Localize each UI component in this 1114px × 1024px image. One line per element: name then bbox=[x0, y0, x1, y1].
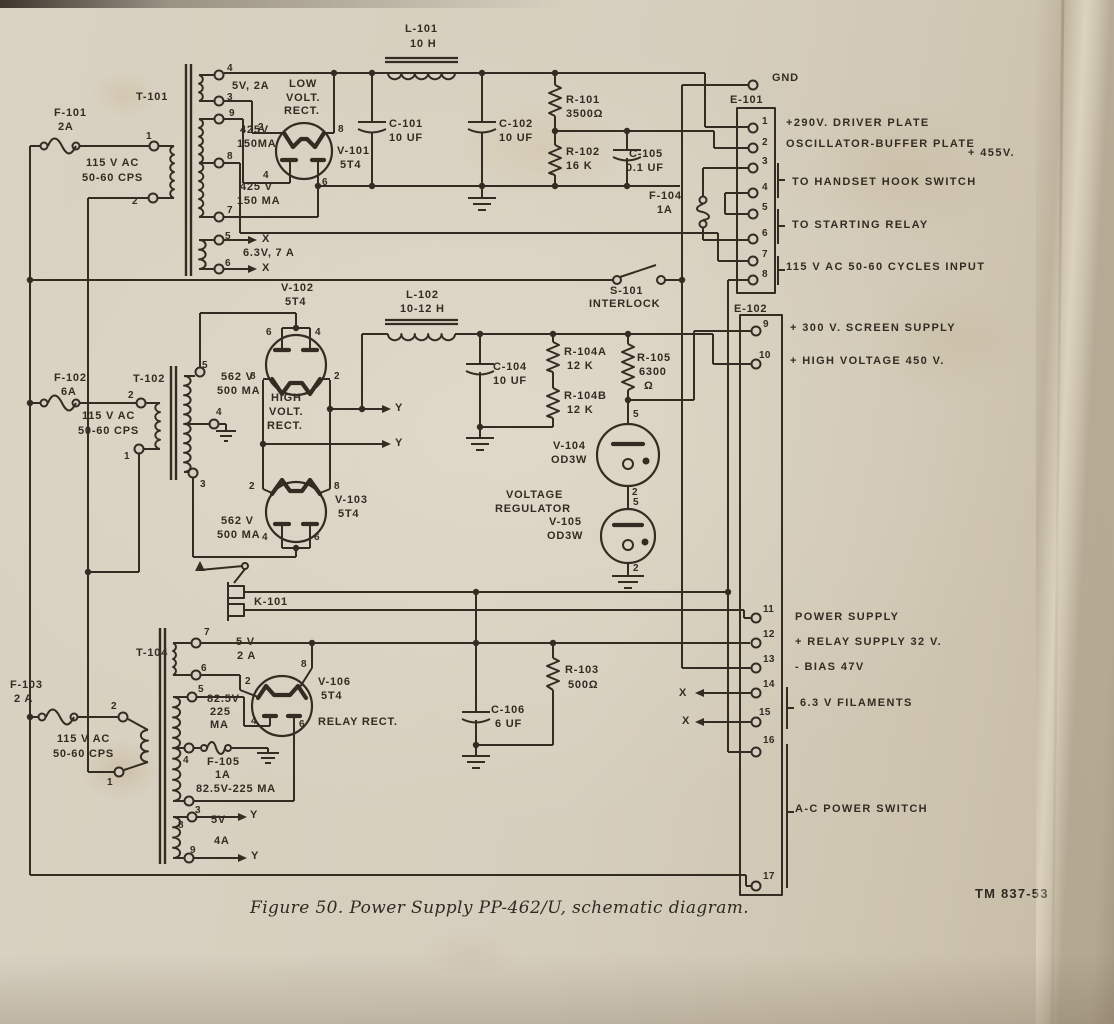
label-out-osc-buffer-v: + 455V. bbox=[968, 147, 1015, 160]
pin-t101-8: 8 bbox=[227, 151, 233, 163]
label-t104-tap: 82.5V-225 MA bbox=[196, 783, 276, 796]
label-r105-value: 6300 bbox=[639, 366, 667, 379]
label-out-handset-hook: TO HANDSET HOOK SWITCH bbox=[792, 176, 977, 189]
label-t104-5v4-a: 4A bbox=[214, 835, 230, 848]
pin-e101-8: 8 bbox=[762, 269, 768, 281]
figure-caption: Figure 50. Power Supply PP-462/U, schema… bbox=[250, 898, 749, 918]
pin-t102-3: 3 bbox=[200, 479, 206, 491]
r104b-resistor bbox=[547, 388, 559, 418]
label-c102: C-102 bbox=[499, 118, 533, 131]
label-v105: V-105 bbox=[549, 516, 582, 529]
pin-e101-2: 2 bbox=[762, 137, 768, 149]
f104-fuse bbox=[697, 197, 709, 228]
v102-tube bbox=[266, 335, 326, 395]
label-v102-role1: HIGH bbox=[271, 392, 302, 405]
label-t101-425v-2: 425 V bbox=[240, 181, 273, 194]
label-c101-value: 10 UF bbox=[389, 132, 423, 145]
label-v101: V-101 bbox=[337, 145, 370, 158]
label-r104a-value: 12 K bbox=[567, 360, 593, 373]
label-v102: V-102 bbox=[281, 282, 314, 295]
label-y-marker-1: Y bbox=[395, 402, 403, 415]
label-t101-63v-winding: 6.3V, 7 A bbox=[243, 247, 295, 260]
pin-e102-15: 15 bbox=[759, 707, 771, 719]
label-out-relay-supply: + RELAY SUPPLY 32 V. bbox=[795, 636, 942, 649]
x-arrow bbox=[248, 265, 257, 273]
label-f103: F-103 bbox=[10, 679, 43, 692]
label-v104-type: OD3W bbox=[551, 454, 587, 467]
pin-t101-6: 6 bbox=[225, 258, 231, 270]
label-c106-value: 6 UF bbox=[495, 718, 522, 731]
pin-e102-11: 11 bbox=[763, 604, 774, 616]
label-v102-role2: VOLT. bbox=[269, 406, 303, 419]
label-e101: E-101 bbox=[730, 94, 763, 107]
r104a-resistor bbox=[547, 342, 559, 372]
pin-t102-1: 1 bbox=[124, 451, 130, 463]
y-arrow bbox=[382, 440, 391, 448]
label-t101-425v-1: 425V bbox=[240, 124, 269, 137]
r102-resistor bbox=[549, 145, 561, 175]
label-v102-role3: RECT. bbox=[267, 420, 303, 433]
label-r102: R-102 bbox=[566, 146, 600, 159]
label-x-marker-3: X bbox=[679, 687, 687, 700]
pin-t104-5: 5 bbox=[198, 684, 204, 696]
label-c105: C-105 bbox=[629, 148, 663, 161]
label-c106: C-106 bbox=[491, 704, 525, 717]
page-fold-shadow bbox=[1036, 0, 1114, 1024]
c102-capacitor bbox=[468, 122, 496, 133]
pin-v102-4: 4 bbox=[315, 327, 321, 339]
pin-t104-7: 7 bbox=[204, 627, 210, 639]
r101-resistor bbox=[549, 85, 561, 116]
label-s101-caption: INTERLOCK bbox=[589, 298, 660, 311]
label-t101-5v-winding: 5V, 2A bbox=[232, 80, 269, 93]
label-v102-type: 5T4 bbox=[285, 296, 306, 309]
t101-transformer bbox=[170, 64, 214, 276]
pin-v103-6: 6 bbox=[314, 532, 320, 544]
label-out-osc-buffer: OSCILLATOR-BUFFER PLATE bbox=[786, 138, 975, 151]
pin-t101-1: 1 bbox=[146, 131, 152, 143]
pin-e101-4: 4 bbox=[762, 182, 768, 194]
label-out-filaments: 6.3 V FILAMENTS bbox=[800, 697, 913, 710]
label-t104-825: 82.5V bbox=[207, 693, 240, 706]
pin-t101-3: 3 bbox=[227, 92, 233, 104]
pin-t101-4: 4 bbox=[227, 63, 233, 75]
l102-choke bbox=[385, 320, 458, 340]
up-arrow bbox=[195, 561, 205, 571]
label-ac-input-1b: 50-60 CPS bbox=[82, 172, 143, 185]
pin-e101-6: 6 bbox=[762, 228, 768, 240]
pin-v101-6: 6 bbox=[322, 177, 328, 189]
pin-v102-6: 6 bbox=[266, 327, 272, 339]
label-f101-rating: 2A bbox=[58, 121, 74, 134]
label-v101-role3: RECT. bbox=[284, 105, 320, 118]
y-arrow bbox=[382, 405, 391, 413]
k101-relay bbox=[228, 563, 248, 621]
label-r104b-value: 12 K bbox=[567, 404, 593, 417]
photo-bottom-shadow bbox=[0, 954, 1114, 1024]
label-v104: V-104 bbox=[553, 440, 586, 453]
pin-v101-4: 4 bbox=[263, 170, 269, 182]
label-c104: C-104 bbox=[493, 361, 527, 374]
label-vr-role2: REGULATOR bbox=[495, 503, 571, 516]
x-arrow bbox=[695, 718, 704, 726]
pin-e102-16: 16 bbox=[763, 735, 775, 747]
label-f105: F-105 bbox=[207, 756, 240, 769]
manual-page: Figure 50. Power Supply PP-462/U, schema… bbox=[0, 0, 1114, 1024]
pin-e101-5: 5 bbox=[762, 202, 768, 214]
label-r103-value: 500Ω bbox=[568, 679, 598, 692]
pin-t104-1: 1 bbox=[107, 777, 113, 789]
label-t104-5v-a: 2 A bbox=[237, 650, 256, 663]
label-out-ac-input: 115 V AC 50-60 CYCLES INPUT bbox=[786, 261, 985, 274]
pin-v106-8: 8 bbox=[301, 659, 307, 671]
label-r101-value: 3500Ω bbox=[566, 108, 603, 121]
label-y-marker-3: Y bbox=[250, 809, 258, 822]
label-v103: V-103 bbox=[335, 494, 368, 507]
pin-v101-2: 2 bbox=[258, 122, 264, 134]
r103-resistor bbox=[547, 658, 559, 690]
label-v106-type: 5T4 bbox=[321, 690, 342, 703]
label-out-bias: - BIAS 47V bbox=[795, 661, 865, 674]
pin-v103-8: 8 bbox=[334, 481, 340, 493]
label-out-screen-supply: + 300 V. SCREEN SUPPLY bbox=[790, 322, 956, 335]
pin-e101-1: 1 bbox=[762, 116, 768, 128]
label-c101: C-101 bbox=[389, 118, 423, 131]
label-gnd: GND bbox=[772, 72, 799, 85]
pin-e102-14: 14 bbox=[763, 679, 775, 691]
label-t101-425v-1-ma: 150MA bbox=[237, 138, 276, 151]
y-arrow bbox=[238, 854, 247, 862]
label-out-high-voltage: + HIGH VOLTAGE 450 V. bbox=[790, 355, 945, 368]
pin-t104-2: 2 bbox=[111, 701, 117, 713]
label-r105: R-105 bbox=[637, 352, 671, 365]
pin-e101-3: 3 bbox=[762, 156, 768, 168]
label-c104-value: 10 UF bbox=[493, 375, 527, 388]
label-t104: T-104 bbox=[136, 647, 168, 660]
label-ac-input-3a: 115 V AC bbox=[57, 733, 110, 746]
label-t104-5v: 5 V bbox=[236, 636, 255, 649]
label-k101: K-101 bbox=[254, 596, 288, 609]
pin-t104-3: 3 bbox=[195, 805, 201, 817]
pin-t101-9: 9 bbox=[229, 108, 235, 120]
v101-tube bbox=[276, 123, 332, 179]
r105-resistor bbox=[622, 344, 634, 390]
label-x-marker-2: X bbox=[262, 262, 270, 275]
label-out-power-supply: POWER SUPPLY bbox=[795, 611, 899, 624]
pin-v106-2: 2 bbox=[245, 676, 251, 688]
pin-e102-13: 13 bbox=[763, 654, 775, 666]
label-r105-unit: Ω bbox=[644, 380, 654, 393]
label-ac-input-2b: 50-60 CPS bbox=[78, 425, 139, 438]
label-t102-bot: 562 V bbox=[221, 515, 254, 528]
label-v106-role: RELAY RECT. bbox=[318, 716, 398, 729]
e101-terminal-box bbox=[737, 108, 785, 293]
pin-v104-5: 5 bbox=[633, 409, 639, 421]
s101-interlock-switch bbox=[30, 265, 682, 284]
pin-t104-8: 8 bbox=[178, 820, 184, 832]
label-x-marker-1: X bbox=[262, 233, 270, 246]
label-t101: T-101 bbox=[136, 91, 168, 104]
label-vr-role1: VOLTAGE bbox=[506, 489, 563, 502]
v105-tube bbox=[601, 509, 655, 563]
label-l102: L-102 bbox=[406, 289, 439, 302]
pin-v105-2: 2 bbox=[633, 563, 639, 575]
pin-e102-10: 10 bbox=[759, 350, 771, 362]
label-l102-value: 10-12 H bbox=[400, 303, 445, 316]
label-f104: F-104 bbox=[649, 190, 682, 203]
label-r102-value: 16 K bbox=[566, 160, 592, 173]
label-r101: R-101 bbox=[566, 94, 600, 107]
label-ac-input-2a: 115 V AC bbox=[82, 410, 135, 423]
label-s101: S-101 bbox=[610, 285, 643, 298]
label-f102-rating: 6A bbox=[61, 386, 77, 399]
label-v101-role1: LOW bbox=[289, 78, 317, 91]
x-arrow bbox=[248, 236, 257, 244]
label-f101: F-101 bbox=[54, 107, 87, 120]
label-l101: L-101 bbox=[405, 23, 438, 36]
label-t102-top-ma: 500 MA bbox=[217, 385, 260, 398]
f103-fuse bbox=[39, 710, 78, 725]
photo-top-edge bbox=[0, 0, 560, 8]
pin-t102-4: 4 bbox=[216, 407, 222, 419]
pin-t104-6: 6 bbox=[201, 663, 207, 675]
f105-fuse bbox=[201, 742, 231, 754]
label-c105-value: 0.1 UF bbox=[626, 162, 664, 175]
label-t104-5v4: 5V bbox=[211, 814, 226, 827]
label-ac-input-1a: 115 V AC bbox=[86, 157, 139, 170]
label-out-starting-relay: TO STARTING RELAY bbox=[792, 219, 929, 232]
label-c102-value: 10 UF bbox=[499, 132, 533, 145]
label-l101-value: 10 H bbox=[410, 38, 436, 51]
pin-v101-8: 8 bbox=[338, 124, 344, 136]
relay-section-wires bbox=[30, 566, 751, 858]
pin-v103-4: 4 bbox=[262, 532, 268, 544]
label-t102-bot-ma: 500 MA bbox=[217, 529, 260, 542]
label-r104b: R-104B bbox=[564, 390, 607, 403]
pin-e102-12: 12 bbox=[763, 629, 775, 641]
x-arrow bbox=[695, 689, 704, 697]
label-y-marker-4: Y bbox=[251, 850, 259, 863]
c101-capacitor bbox=[358, 122, 386, 133]
label-v101-role2: VOLT. bbox=[286, 92, 320, 105]
label-f105-rating: 1A bbox=[215, 769, 231, 782]
pin-v102-2: 2 bbox=[334, 371, 340, 383]
label-out-ac-power-switch: A-C POWER SWITCH bbox=[795, 803, 928, 816]
label-v101-type: 5T4 bbox=[340, 159, 361, 172]
label-t102-top: 562 V bbox=[221, 371, 254, 384]
pin-t102-5: 5 bbox=[202, 360, 208, 372]
pin-e102-17: 17 bbox=[763, 871, 775, 883]
label-out-driver-plate: +290V. DRIVER PLATE bbox=[786, 117, 930, 130]
pin-t101-5: 5 bbox=[225, 231, 231, 243]
y-arrow bbox=[238, 813, 247, 821]
label-t102: T-102 bbox=[133, 373, 165, 386]
pin-e101-7: 7 bbox=[762, 249, 768, 261]
pin-t101-7: 7 bbox=[227, 205, 233, 217]
label-v103-type: 5T4 bbox=[338, 508, 359, 521]
label-r104a: R-104A bbox=[564, 346, 607, 359]
label-y-marker-2: Y bbox=[395, 437, 403, 450]
label-ac-input-3b: 50-60 CPS bbox=[53, 748, 114, 761]
v104-tube bbox=[597, 424, 659, 486]
label-f104-rating: 1A bbox=[657, 204, 673, 217]
label-f102: F-102 bbox=[54, 372, 87, 385]
label-t104-825-ma: 225 bbox=[210, 706, 231, 719]
pin-t102-2: 2 bbox=[128, 390, 134, 402]
label-e102: E-102 bbox=[734, 303, 767, 316]
label-t104-825-ma2: MA bbox=[210, 719, 229, 732]
pin-v106-4: 4 bbox=[251, 716, 257, 728]
pin-t104-4: 4 bbox=[183, 755, 189, 767]
label-v106: V-106 bbox=[318, 676, 351, 689]
label-r103: R-103 bbox=[565, 664, 599, 677]
label-f103-rating: 2 A bbox=[14, 693, 33, 706]
label-t101-425v-2-ma: 150 MA bbox=[237, 195, 280, 208]
label-x-marker-4: X bbox=[682, 715, 690, 728]
label-v105-type: OD3W bbox=[547, 530, 583, 543]
pin-t101-2: 2 bbox=[132, 196, 138, 208]
pin-v106-6: 6 bbox=[299, 719, 305, 731]
pin-v105-5: 5 bbox=[633, 497, 639, 509]
t104-transformer bbox=[141, 628, 180, 864]
pin-t104-9: 9 bbox=[190, 845, 196, 857]
f101-fuse bbox=[41, 139, 80, 154]
pin-v103-2: 2 bbox=[249, 481, 255, 493]
pin-e102-9: 9 bbox=[763, 319, 769, 331]
l101-choke bbox=[385, 58, 458, 79]
